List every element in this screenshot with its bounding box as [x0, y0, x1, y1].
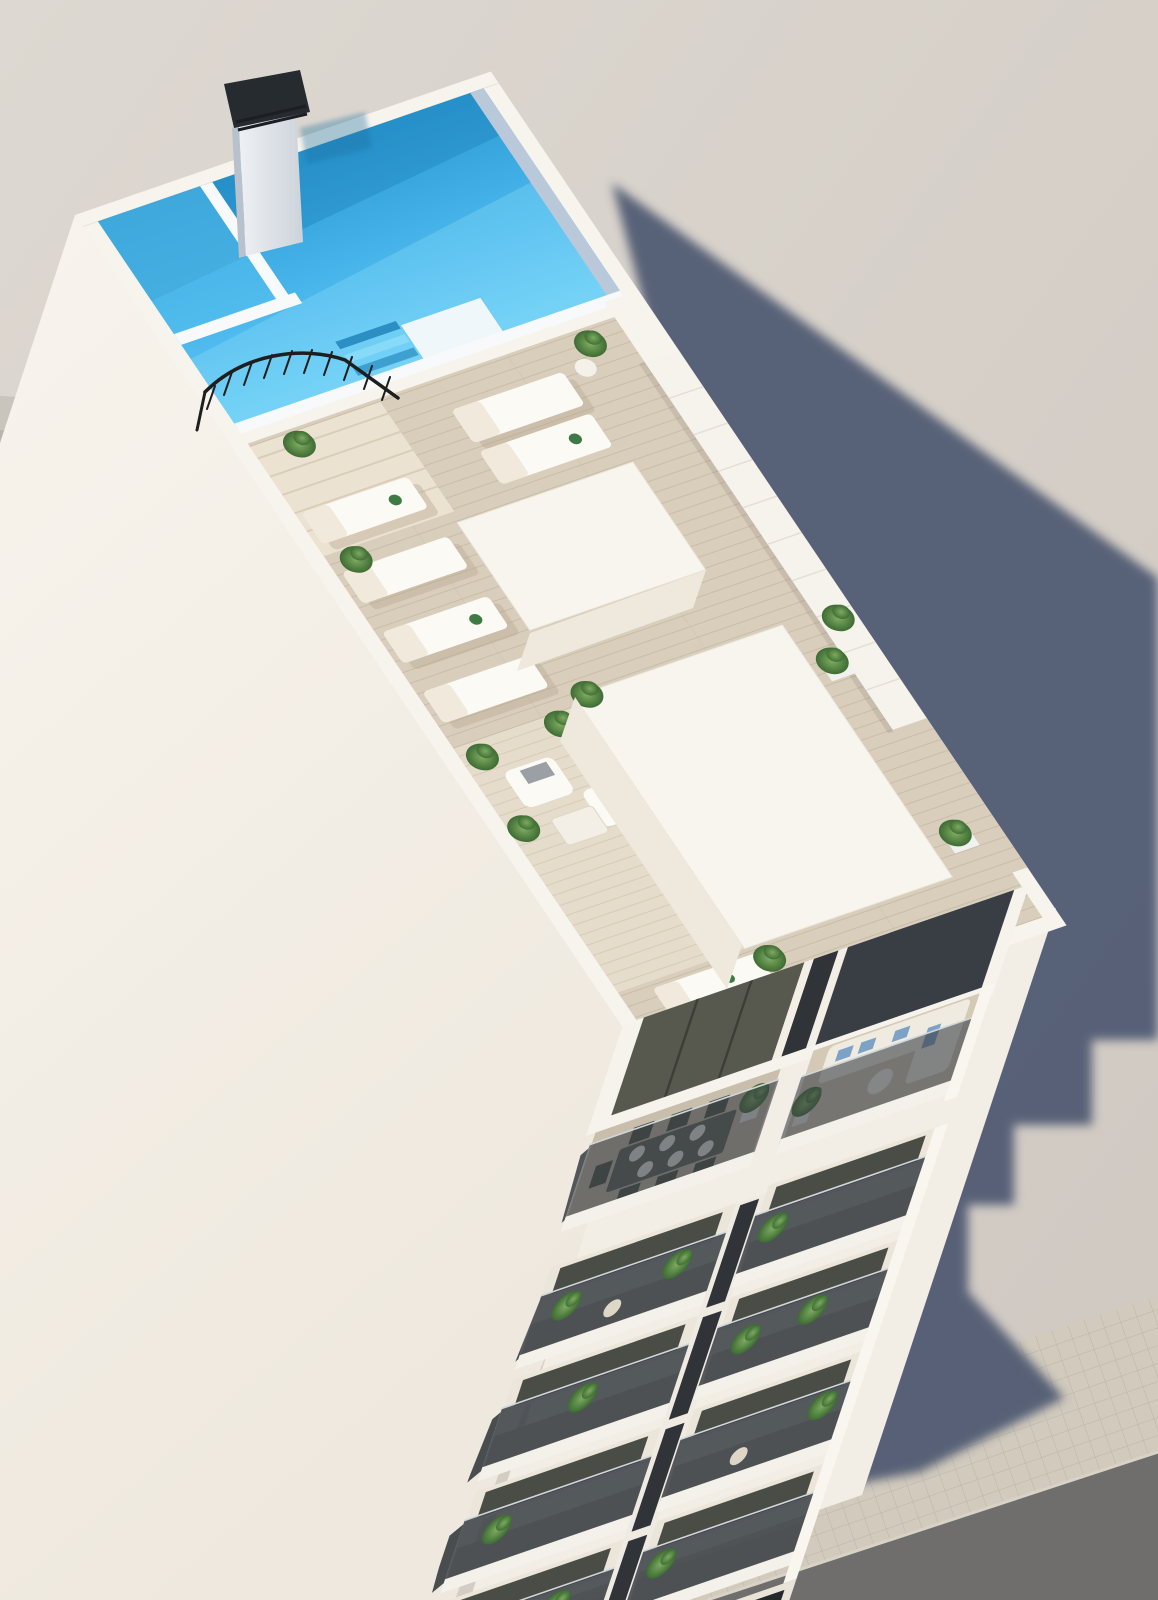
- chimney-body: [239, 112, 303, 256]
- architectural-render: [0, 0, 1158, 1600]
